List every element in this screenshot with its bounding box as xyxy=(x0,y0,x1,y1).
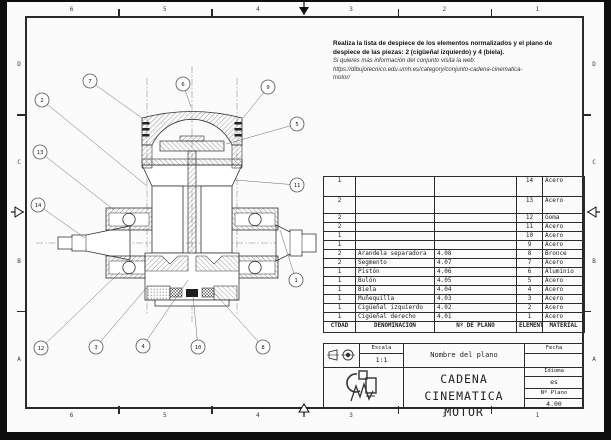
denomination-cell: Segmento xyxy=(356,259,435,268)
balloon-13: 13 xyxy=(33,145,114,210)
plan-number-cell xyxy=(435,197,517,214)
material-cell: Acero xyxy=(543,177,585,197)
idioma-value: es xyxy=(525,377,583,389)
grid-label: 5 xyxy=(159,412,171,420)
denomination-cell: Pistón xyxy=(356,268,435,277)
balloon-9: 9 xyxy=(243,80,275,118)
svg-text:8: 8 xyxy=(261,345,264,351)
balloon-14: 14 xyxy=(31,198,85,238)
ball-bearing-upper-right xyxy=(232,208,278,230)
ball-bearing-upper-left xyxy=(106,208,152,230)
projection-cell xyxy=(324,344,359,367)
plan-name: Nombre del plano xyxy=(404,344,524,366)
svg-text:9: 9 xyxy=(266,85,269,91)
svg-text:10: 10 xyxy=(195,345,202,351)
element-cell: 12 xyxy=(517,214,543,223)
parts-table-row: 2 Arandela separadora 4.08 8 Bronce xyxy=(324,250,585,259)
material-cell: Acero xyxy=(543,313,585,322)
grid-label: 4 xyxy=(252,6,264,14)
balloon-8: 8 xyxy=(210,288,270,354)
escala-value: 1:1 xyxy=(360,354,403,367)
grid-label: 4 xyxy=(252,412,264,420)
parts-table-row: 1 Cigüeñal izquierdo 4.02 2 Acero xyxy=(324,304,585,313)
qty-cell: 1 xyxy=(324,277,356,286)
drawing-title-line2: MOTOR xyxy=(404,404,524,421)
element-cell: 3 xyxy=(517,295,543,304)
qty-cell: 1 xyxy=(324,295,356,304)
note-url: motor/ xyxy=(333,74,585,82)
denomination-cell: Muñequilla xyxy=(356,295,435,304)
balloon-7: 7 xyxy=(83,74,142,118)
element-cell: 13 xyxy=(517,197,543,214)
grid-label: 1 xyxy=(531,412,543,420)
plan-number-cell: 4.07 xyxy=(435,259,517,268)
grid-label: 3 xyxy=(345,6,357,14)
num-plano-value: 4.00 xyxy=(525,399,583,410)
grid-label: B xyxy=(13,258,25,266)
parts-table-row: 1 Biela 4.04 4 Acero xyxy=(324,286,585,295)
parts-table-row: 1 Muñequilla 4.03 3 Acero xyxy=(324,295,585,304)
note-line: Realiza la lista de despiece de los elem… xyxy=(333,40,585,49)
svg-text:2: 2 xyxy=(40,98,43,104)
parts-table-row: 1 10 Acero xyxy=(324,232,585,241)
plan-number-cell xyxy=(435,177,517,197)
material-cell: Goma xyxy=(543,214,585,223)
svg-text:5: 5 xyxy=(295,122,298,128)
element-cell: 1 xyxy=(517,313,543,322)
grid-label: A xyxy=(588,356,600,364)
qty-cell: 1 xyxy=(324,313,356,322)
material-cell: Acero xyxy=(543,295,585,304)
zone-tick xyxy=(398,9,400,17)
element-cell: 14 xyxy=(517,177,543,197)
parts-table-row: 2 12 Goma xyxy=(324,214,585,223)
parts-table-row: 1 14 Acero xyxy=(324,177,585,197)
plan-number-cell xyxy=(435,232,517,241)
parts-table-row: 1 Cigüeñal derecho 4.01 1 Acero xyxy=(324,313,585,322)
qty-cell: 2 xyxy=(324,214,356,223)
fecha-label: Fecha xyxy=(525,344,583,354)
crankshaft-left-end xyxy=(58,226,130,260)
denomination-cell xyxy=(356,177,435,197)
plan-number-cell: 4.02 xyxy=(435,304,517,313)
qty-cell: 2 xyxy=(324,259,356,268)
zone-tick xyxy=(491,406,493,414)
zone-tick xyxy=(211,9,213,17)
plan-number-cell xyxy=(435,241,517,250)
grid-label: D xyxy=(588,61,600,69)
balloon-2: 2 xyxy=(35,93,147,186)
fecha-cell: Fecha xyxy=(524,344,583,367)
svg-text:3: 3 xyxy=(94,345,97,351)
balloon-12: 12 xyxy=(34,272,120,355)
denomination-cell xyxy=(356,197,435,214)
grid-label: 2 xyxy=(438,6,450,14)
material-cell: Bronce xyxy=(543,250,585,259)
svg-text:1: 1 xyxy=(294,278,297,284)
centering-mark-bottom-icon xyxy=(297,402,311,418)
parts-table-row: 2 Segmento 4.07 7 Acero xyxy=(324,259,585,268)
header-qty: CTDAD xyxy=(324,322,356,333)
parts-table-row: 1 9 Acero xyxy=(324,241,585,250)
parts-table-row: 2 13 Acero xyxy=(324,197,585,214)
zone-tick xyxy=(17,114,26,116)
zone-tick xyxy=(211,406,213,414)
denomination-cell xyxy=(356,223,435,232)
material-cell: Acero xyxy=(543,304,585,313)
header-denomination: DENOMINACIÓN xyxy=(356,322,435,333)
material-cell: Acero xyxy=(543,223,585,232)
balloon-11: 11 xyxy=(235,178,304,192)
escala-cell: Escala 1:1 xyxy=(359,344,403,367)
grid-label: D xyxy=(13,61,25,69)
zone-tick xyxy=(118,406,120,414)
plan-number-cell: 4.08 xyxy=(435,250,517,259)
material-cell: Acero xyxy=(543,277,585,286)
grid-label: 1 xyxy=(531,6,543,14)
logo-cell xyxy=(324,367,403,408)
grid-label: 3 xyxy=(345,412,357,420)
svg-text:6: 6 xyxy=(181,82,184,88)
zone-tick xyxy=(118,9,120,17)
note-line: despiece de las piezas: 2 (cigüeñal izqu… xyxy=(333,49,585,58)
centering-mark-right-icon xyxy=(585,205,600,219)
material-cell: Acero xyxy=(543,241,585,250)
wrist-pin xyxy=(160,136,224,151)
header-plan-number: Nº DE PLANO xyxy=(435,322,517,333)
qty-cell: 2 xyxy=(324,250,356,259)
zone-tick xyxy=(491,9,493,17)
denomination-cell: Cigüeñal izquierdo xyxy=(356,304,435,313)
element-cell: 2 xyxy=(517,304,543,313)
plan-number-cell xyxy=(435,214,517,223)
idioma-label: Idioma xyxy=(525,367,583,377)
escala-label: Escala xyxy=(360,344,403,354)
note-line: Si quieres más información del conjunto … xyxy=(333,57,585,65)
qty-cell: 1 xyxy=(324,241,356,250)
grid-label: C xyxy=(13,159,25,167)
denomination-cell xyxy=(356,232,435,241)
parts-table-row: 2 11 Acero xyxy=(324,223,585,232)
denomination-cell: Bulón xyxy=(356,277,435,286)
grid-label: B xyxy=(588,258,600,266)
qty-cell: 2 xyxy=(324,223,356,232)
qty-cell: 1 xyxy=(324,304,356,313)
element-cell: 7 xyxy=(517,259,543,268)
element-cell: 11 xyxy=(517,223,543,232)
title-block: Escala 1:1 Nombre del plano Fecha CADENA… xyxy=(323,343,584,409)
centering-mark-top-icon xyxy=(297,2,311,17)
crank-webs xyxy=(145,253,239,306)
note-url: https://dibujotecnico.edu.umh.es/categor… xyxy=(333,66,585,74)
svg-text:13: 13 xyxy=(37,150,44,156)
denomination-cell xyxy=(356,214,435,223)
header-element: ELEMENTO xyxy=(517,322,543,333)
svg-text:14: 14 xyxy=(35,203,42,209)
plan-number-cell xyxy=(435,223,517,232)
material-cell: Acero xyxy=(543,286,585,295)
material-cell: Aluminio xyxy=(543,268,585,277)
zone-tick xyxy=(398,406,400,414)
material-cell: Acero xyxy=(543,232,585,241)
header-material: MATERIAL xyxy=(543,322,585,333)
material-cell: Acero xyxy=(543,197,585,214)
zone-tick xyxy=(582,311,591,313)
screenshot-root: { "colors": {"paper":"#fbfbfb","ink":"#2… xyxy=(0,0,611,440)
element-cell: 8 xyxy=(517,250,543,259)
qty-cell: 2 xyxy=(324,197,356,214)
element-cell: 6 xyxy=(517,268,543,277)
element-cell: 5 xyxy=(517,277,543,286)
grid-label: C xyxy=(588,159,600,167)
element-cell: 10 xyxy=(517,232,543,241)
qty-cell: 1 xyxy=(324,177,356,197)
qty-cell: 1 xyxy=(324,232,356,241)
denomination-cell: Arandela separadora xyxy=(356,250,435,259)
num-plano-label: Nº Plano xyxy=(525,389,583,399)
parts-table-header: CTDAD DENOMINACIÓN Nº DE PLANO ELEMENTO … xyxy=(324,322,585,333)
drawing-title-cell: CADENA CINEMATICA MOTOR xyxy=(403,367,524,408)
first-angle-projection-icon xyxy=(327,349,357,361)
crankshaft-right-end xyxy=(276,225,316,261)
drawing-title-line1: CADENA CINEMATICA xyxy=(404,371,524,404)
denomination-cell: Biela xyxy=(356,286,435,295)
grid-label: A xyxy=(13,356,25,364)
parts-table-row: 1 Bulón 4.05 5 Acero xyxy=(324,277,585,286)
balloon-6: 6 xyxy=(176,77,191,107)
grid-label: 6 xyxy=(66,412,78,420)
parts-table: 1 14 Acero 2 13 Acero 2 12 Goma xyxy=(323,176,585,333)
plan-number-cell: 4.05 xyxy=(435,277,517,286)
svg-text:7: 7 xyxy=(88,79,91,85)
plan-name-cell: Nombre del plano xyxy=(403,344,524,367)
zone-tick xyxy=(17,311,26,313)
svg-text:12: 12 xyxy=(38,346,45,352)
element-cell: 4 xyxy=(517,286,543,295)
grid-label: 6 xyxy=(66,6,78,14)
denomination-cell xyxy=(356,241,435,250)
material-cell: Acero xyxy=(543,259,585,268)
denomination-cell: Cigüeñal derecho xyxy=(356,313,435,322)
qty-cell: 1 xyxy=(324,268,356,277)
plan-number-cell: 4.03 xyxy=(435,295,517,304)
qty-cell: 1 xyxy=(324,286,356,295)
zone-tick xyxy=(582,114,591,116)
plan-number-cell: 4.04 xyxy=(435,286,517,295)
note-block: Realiza la lista de despiece de los elem… xyxy=(333,40,585,82)
plan-number-cell: 4.01 xyxy=(435,313,517,322)
centering-mark-left-icon xyxy=(11,205,26,219)
assembly-drawing: 1234567891011121314 xyxy=(30,60,320,360)
element-cell: 9 xyxy=(517,241,543,250)
svg-text:11: 11 xyxy=(294,183,301,189)
plan-number-cell: 4.06 xyxy=(435,268,517,277)
meta-cell: Idioma es Nº Plano 4.00 xyxy=(524,367,583,408)
parts-table-row: 1 Pistón 4.06 6 Aluminio xyxy=(324,268,585,277)
umh-logo-icon xyxy=(342,369,380,405)
grid-label: 5 xyxy=(159,6,171,14)
